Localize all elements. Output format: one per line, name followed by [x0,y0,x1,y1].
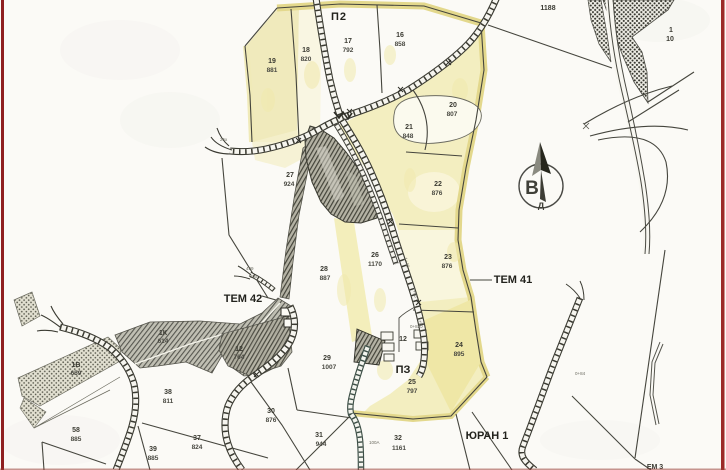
svg-text:0+84: 0+84 [575,371,586,376]
svg-text:764: 764 [234,354,245,361]
svg-text:29: 29 [323,355,331,362]
svg-text:ЮРАН 1: ЮРАН 1 [466,430,509,442]
svg-text:20: 20 [449,102,457,109]
svg-text:797: 797 [407,388,418,395]
svg-text:924: 924 [284,181,295,188]
svg-text:24: 24 [455,342,463,349]
svg-text:824: 824 [192,444,203,451]
svg-text:1В: 1В [72,362,81,369]
svg-text:23: 23 [444,254,452,261]
svg-text:1161: 1161 [392,445,406,452]
svg-text:1170: 1170 [368,261,382,268]
svg-text:1007: 1007 [322,364,337,371]
svg-text:887: 887 [320,275,331,282]
svg-text:25х: 25х [250,274,258,279]
svg-text:614: 614 [158,338,169,345]
svg-text:19: 19 [268,58,276,65]
svg-text:32: 32 [394,435,402,442]
svg-text:ТЕМ 42: ТЕМ 42 [224,293,263,305]
svg-text:31: 31 [315,432,323,439]
svg-text:26: 26 [371,252,379,259]
svg-text:ТЕМ 41: ТЕМ 41 [494,274,533,286]
svg-text:38: 38 [164,389,172,396]
svg-text:1: 1 [669,27,673,34]
svg-text:18: 18 [302,47,310,54]
svg-text:27: 27 [286,172,294,179]
svg-text:12: 12 [235,346,243,353]
svg-text:792: 792 [343,47,354,54]
svg-text:39: 39 [149,446,157,453]
svg-text:1К: 1К [159,330,168,337]
svg-text:д: д [538,200,545,211]
svg-text:ПЗ: ПЗ [396,364,411,376]
svg-text:885: 885 [71,436,82,443]
svg-text:0+82: 0+82 [410,324,421,329]
svg-text:848: 848 [403,133,414,140]
svg-text:944: 944 [316,441,327,448]
svg-text:58: 58 [72,427,80,434]
svg-text:10: 10 [666,36,674,43]
svg-text:В: В [525,178,539,199]
svg-text:876: 876 [432,190,443,197]
svg-text:25: 25 [408,379,416,386]
svg-text:895: 895 [454,351,465,358]
svg-text:881: 881 [267,67,278,74]
svg-text:21: 21 [405,124,413,131]
svg-text:858: 858 [395,41,406,48]
svg-text:16: 16 [396,32,404,39]
svg-text:28: 28 [320,266,328,273]
svg-text:659: 659 [71,370,82,377]
svg-text:П2: П2 [331,11,347,23]
svg-text:12: 12 [399,336,407,343]
svg-text:30: 30 [267,408,275,415]
svg-text:1188: 1188 [540,5,555,12]
svg-text:885: 885 [148,455,159,462]
svg-text:876: 876 [442,263,453,270]
svg-text:499: 499 [246,266,254,271]
svg-text:876: 876 [266,417,277,424]
svg-text:17: 17 [344,38,352,45]
svg-text:807: 807 [447,111,458,118]
svg-text:22: 22 [434,181,442,188]
svg-text:811: 811 [163,398,174,405]
svg-text:100А: 100А [369,440,380,445]
svg-text:37: 37 [193,435,201,442]
svg-text:25х: 25х [220,137,228,142]
svg-text:820: 820 [301,56,312,63]
